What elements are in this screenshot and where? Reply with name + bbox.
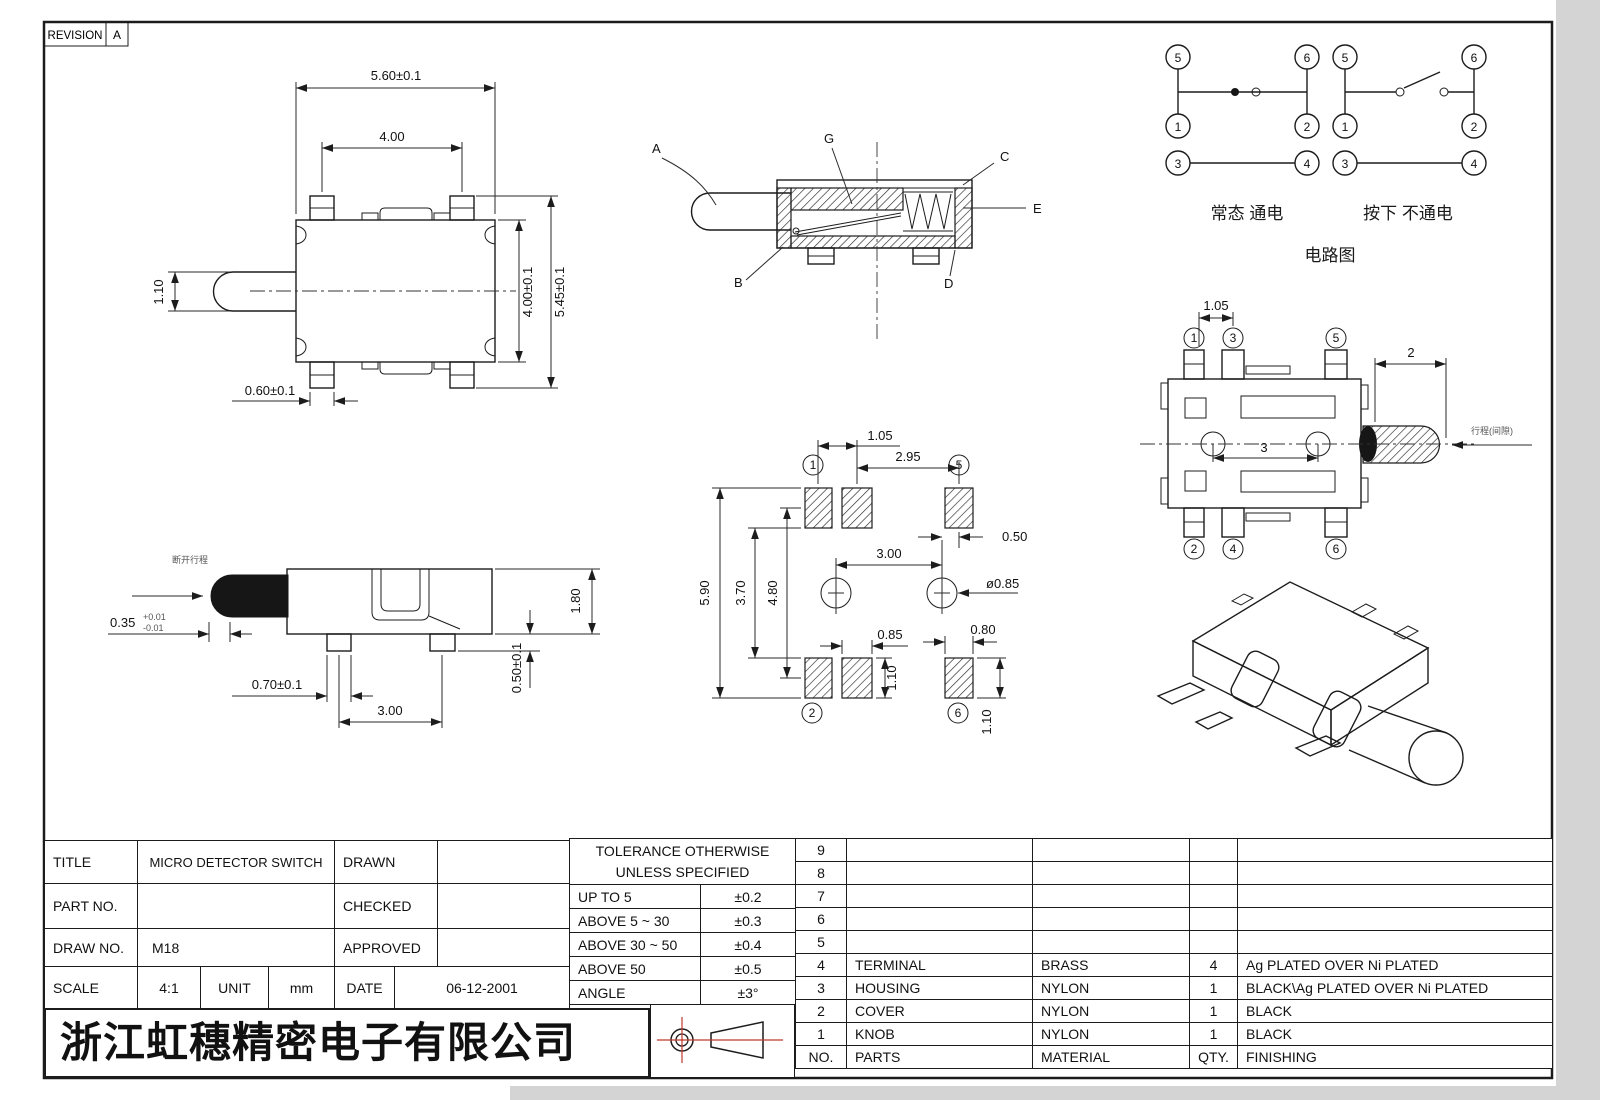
dim-pin-pitch: 3.00: [377, 703, 402, 718]
header-material: MATERIAL: [1033, 1046, 1190, 1069]
dim-pad6-height: 1.10: [979, 709, 994, 734]
dim-height: 1.80: [568, 588, 583, 613]
label-e: E: [1033, 201, 1042, 216]
pin-number: 2: [1471, 120, 1478, 134]
section-view: A G C E B D: [652, 131, 1042, 340]
tolerance-value: ±0.3: [701, 909, 796, 933]
table-row: 6: [796, 908, 1553, 931]
note-break-travel: 断开行程: [172, 554, 208, 565]
dim-pad6-width: 0.80: [970, 622, 995, 637]
top-view: 1 3 5 2 4 6 1.05 2 3 行程(间隙): [1140, 298, 1532, 559]
tolerance-table: TOLERANCE OTHERWISE UNLESS SPECIFIED UP …: [569, 838, 796, 1005]
tolerance-value: ±0.5: [701, 957, 796, 981]
approved-value: [438, 929, 570, 967]
header-qty: QTY.: [1190, 1046, 1238, 1069]
scale-value: 4:1: [138, 967, 201, 1009]
dim-tip-minus: -0.01: [143, 623, 164, 633]
title-label: TITLE: [45, 841, 138, 884]
unit-label: UNIT: [201, 967, 269, 1009]
circuit-title: 电路图: [1305, 246, 1356, 265]
drawing-sheet: REVISION A: [0, 0, 1600, 1100]
unit-value: mm: [269, 967, 335, 1009]
svg-text:2: 2: [809, 706, 816, 720]
knob-3d: [1409, 731, 1463, 785]
tolerance-value: ±3°: [701, 981, 796, 1005]
dim-total-height: 5.45±0.1: [552, 267, 567, 318]
dim-travel: 2: [1407, 345, 1414, 360]
pin-number: 5: [1342, 51, 1349, 65]
pad: [945, 488, 973, 528]
contact-blade: [793, 213, 901, 235]
pin-number: 1: [1175, 120, 1182, 134]
dim-pin-pitch: 4.00: [379, 129, 404, 144]
dim-tip: 0.35: [110, 615, 135, 630]
dim-pin-width: 0.70±0.1: [252, 677, 303, 692]
contact-closed-dot: [1231, 88, 1239, 96]
drawn-value: [438, 841, 570, 884]
revision-box: REVISION A: [44, 22, 128, 46]
pin-number: 3: [1175, 157, 1182, 171]
parts-table: 9 8 7 6 5 4TERMINALBRASS4Ag PLATED OVER …: [795, 838, 1553, 1069]
svg-text:1: 1: [810, 458, 817, 472]
label-a: A: [652, 141, 661, 156]
table-row: 5: [796, 931, 1553, 954]
header-finishing: FINISHING: [1238, 1046, 1553, 1069]
dim-hole-dia: ø0.85: [986, 576, 1019, 591]
caption-pressed: 按下 不通电: [1363, 204, 1453, 223]
draw-no-label: DRAW NO.: [45, 929, 138, 967]
scale-label: SCALE: [45, 967, 138, 1009]
parts-header-row: NO. PARTS MATERIAL QTY. FINISHING: [796, 1046, 1553, 1069]
dim-span-inner: 3.70: [733, 580, 748, 605]
table-row: 1KNOBNYLON1BLACK: [796, 1023, 1553, 1046]
svg-text:3: 3: [1230, 331, 1237, 345]
front-dimension-lines: [168, 82, 558, 406]
dim-pad-pitch: 1.05: [1203, 298, 1228, 313]
knob-outline: [214, 272, 297, 311]
title-block: TITLE MICRO DETECTOR SWITCH DRAWN PART N…: [44, 840, 570, 967]
label-c: C: [1000, 149, 1009, 164]
part-no-label: PART NO.: [45, 884, 138, 929]
tolerance-range: ABOVE 30 ~ 50: [570, 933, 701, 957]
tolerance-range: UP TO 5: [570, 885, 701, 909]
part-no-value: [138, 884, 335, 929]
page-margin-right: [1556, 0, 1600, 1100]
pad: [805, 488, 832, 528]
svg-text:5: 5: [1333, 331, 1340, 345]
tolerance-header-line2: UNLESS SPECIFIED: [570, 862, 795, 883]
dim-pin-width: 0.60±0.1: [245, 383, 296, 398]
dim-tip-plus: +0.01: [143, 612, 166, 622]
table-row: 9: [796, 839, 1553, 862]
pin-number: 1: [1342, 120, 1349, 134]
tolerance-header: TOLERANCE OTHERWISE UNLESS SPECIFIED: [570, 839, 796, 885]
pin-number: 4: [1471, 157, 1478, 171]
title-value: MICRO DETECTOR SWITCH: [138, 841, 335, 884]
revision-value: A: [113, 28, 121, 42]
pad: [842, 488, 872, 528]
dim-body-height: 4.00±0.1: [520, 267, 535, 318]
dim-pin-height: 0.50±0.1: [509, 643, 524, 694]
pin-number: 6: [1471, 51, 1478, 65]
dim-hole-offset: 0.50: [1002, 529, 1027, 544]
label-d: D: [944, 276, 953, 291]
pin-number: 3: [1342, 157, 1349, 171]
approved-label: APPROVED: [335, 929, 438, 967]
dim-width: 5.60±0.1: [371, 68, 422, 83]
checked-label: CHECKED: [335, 884, 438, 929]
spring: [903, 192, 953, 231]
pin-number: 2: [1304, 120, 1311, 134]
note-travel-gap: 行程(间隙): [1471, 425, 1513, 436]
drawn-label: DRAWN: [335, 841, 438, 884]
tolerance-header-line1: TOLERANCE OTHERWISE: [570, 841, 795, 862]
checked-value: [438, 884, 570, 929]
dim-span-outer: 5.90: [697, 580, 712, 605]
pin-number: 5: [1175, 51, 1182, 65]
header-no: NO.: [796, 1046, 847, 1069]
svg-text:4: 4: [1230, 542, 1237, 556]
knob-side: [211, 575, 288, 617]
pad: [805, 658, 832, 698]
first-angle-projection-icon: [651, 1005, 792, 1075]
dim-hole-pitch: 3.00: [876, 546, 901, 561]
draw-no-value: M18: [138, 929, 335, 967]
date-label: DATE: [335, 967, 395, 1009]
land-pattern: 1 5 2 6: [697, 428, 1027, 735]
circuit-normal: 5 6 1 2 3 4: [1166, 45, 1319, 175]
scale-row: SCALE 4:1 UNIT mm DATE 06-12-2001: [44, 966, 570, 1009]
dim-pitch-1-5: 2.95: [895, 449, 920, 464]
pad: [842, 658, 872, 698]
circuit-diagrams: 5 6 1 2 3 4 5 6 1 2 3 4 常态 通电: [1166, 45, 1486, 265]
page-margin-bottom: [510, 1086, 1600, 1100]
header-parts: PARTS: [847, 1046, 1033, 1069]
side-view: 0.35 +0.01 -0.01 断开行程 0.70±0.1 3.00 1.80…: [108, 554, 600, 728]
table-row: 4TERMINALBRASS4Ag PLATED OVER Ni PLATED: [796, 954, 1553, 977]
table-row: 7: [796, 885, 1553, 908]
svg-text:6: 6: [955, 706, 962, 720]
table-row: 3HOUSINGNYLON1BLACK\Ag PLATED OVER Ni PL…: [796, 977, 1553, 1000]
svg-text:2: 2: [1191, 542, 1198, 556]
label-g: G: [824, 131, 834, 146]
label-b: B: [734, 275, 743, 290]
date-value: 06-12-2001: [395, 967, 570, 1009]
pin-number: 6: [1304, 51, 1311, 65]
isometric-view: [1158, 582, 1463, 785]
side-view-dimension-lines: [108, 569, 600, 728]
dim-hole-pitch: 3: [1260, 440, 1267, 455]
table-row: 2COVERNYLON1BLACK: [796, 1000, 1553, 1023]
dim-span-center: 4.80: [765, 580, 780, 605]
svg-text:1: 1: [1191, 331, 1198, 345]
dim-pad-height: 1.10: [884, 665, 899, 690]
company-name: 浙江虹穗精密电子有限公司: [44, 1008, 650, 1078]
dim-pad-width: 0.85: [877, 627, 902, 642]
front-view: 5.60±0.1 4.00 1.10 4.00±0.1 5.45±0.1 0.6…: [151, 68, 567, 406]
knob-section: [692, 193, 792, 230]
projection-symbol-cell: [650, 1004, 795, 1078]
tolerance-value: ±0.2: [701, 885, 796, 909]
tolerance-range: ABOVE 5 ~ 30: [570, 909, 701, 933]
tolerance-value: ±0.4: [701, 933, 796, 957]
dim-pad-pitch: 1.05: [867, 428, 892, 443]
circuit-pressed: 5 6 1 2 3 4: [1333, 45, 1486, 175]
tolerance-range: ANGLE: [570, 981, 701, 1005]
dim-knob-height: 1.10: [151, 279, 166, 304]
caption-normal: 常态 通电: [1211, 204, 1284, 223]
revision-label: REVISION: [48, 30, 103, 42]
pad: [945, 658, 973, 698]
pin-number: 4: [1304, 157, 1311, 171]
tolerance-range: ABOVE 50: [570, 957, 701, 981]
table-row: 8: [796, 862, 1553, 885]
svg-text:6: 6: [1333, 542, 1340, 556]
